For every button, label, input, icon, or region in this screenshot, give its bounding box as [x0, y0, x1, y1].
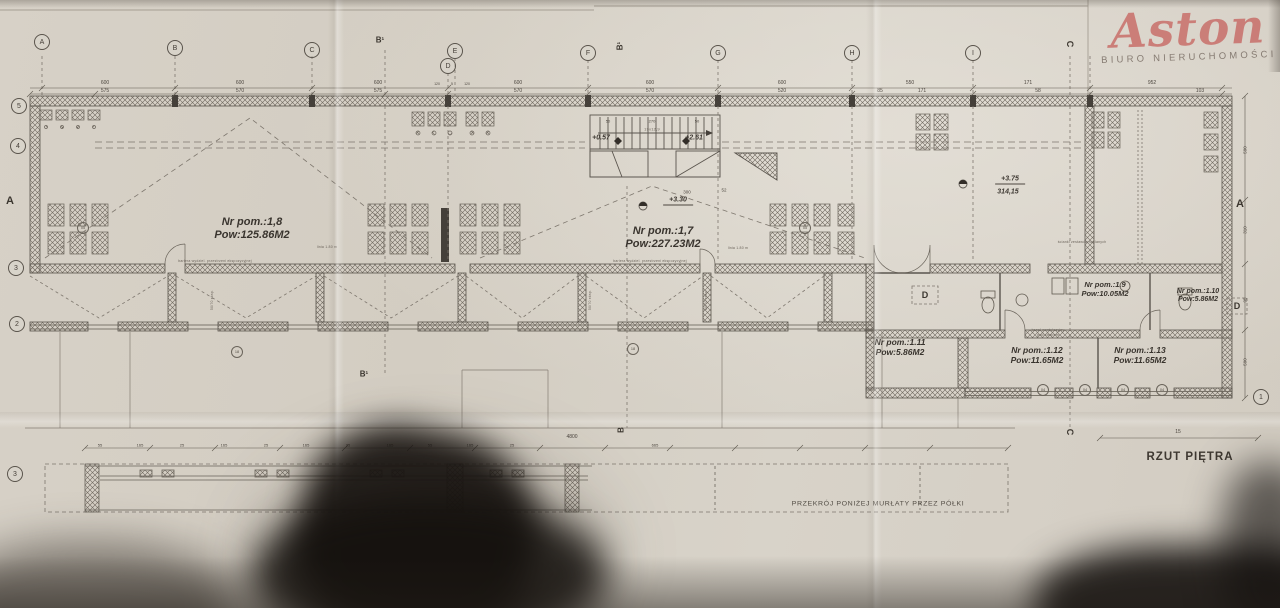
plan-title: RZUT PIĘTRA	[1146, 451, 1233, 463]
dashed-lines	[30, 50, 1247, 430]
plan-drawing	[0, 0, 1280, 608]
section-caption: PRZEKRÓJ PONIŻEJ MURŁATY PRZEZ PÓŁKI	[792, 501, 965, 507]
aston-logo: Aston BIURO NIERUCHOMOŚCI	[1097, 1, 1279, 66]
door-arcs	[165, 244, 1160, 330]
furniture-group	[40, 110, 1218, 254]
sheet-edges	[0, 0, 1088, 98]
floorplan-photo: 6006006006006006005501719525755705755705…	[0, 0, 1280, 608]
column-posts	[172, 95, 1093, 262]
staircase	[590, 115, 967, 210]
walls-group	[30, 96, 1232, 398]
wc-fixtures	[981, 278, 1192, 313]
